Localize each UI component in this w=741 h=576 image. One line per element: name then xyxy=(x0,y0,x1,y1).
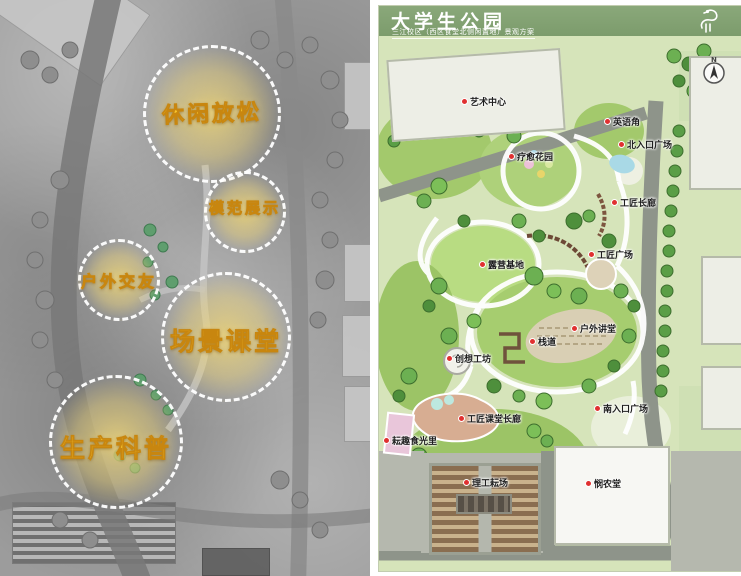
tree-icon xyxy=(166,276,178,288)
tree-icon xyxy=(525,267,543,285)
location-dot-icon xyxy=(588,251,595,258)
location-dot-icon xyxy=(463,479,470,486)
tree-icon xyxy=(673,75,685,87)
tree-icon xyxy=(393,390,405,402)
zone-label: 场景课堂 xyxy=(170,322,282,358)
tree-icon xyxy=(32,212,48,228)
tree-icon xyxy=(277,52,293,68)
tree-icon xyxy=(671,145,683,157)
tree-icon xyxy=(659,305,671,317)
tree-icon xyxy=(665,205,677,217)
tree-icon xyxy=(583,210,595,222)
tree-icon xyxy=(566,213,582,229)
map-label-craftsman-gallery: 工匠长廊 xyxy=(611,196,656,209)
tree-icon xyxy=(82,532,98,548)
zone-label: 户外交友 xyxy=(81,268,157,292)
tree-icon xyxy=(622,329,636,343)
tree-icon xyxy=(292,492,308,508)
tree-icon xyxy=(536,393,552,409)
tree-icon xyxy=(302,37,318,53)
tree-icon xyxy=(62,42,78,58)
tree-icon xyxy=(423,300,435,312)
tree-icon xyxy=(487,379,501,393)
map-label-food-lane: 耘趣食光里 xyxy=(383,434,437,447)
park-design-sheet: 休闲放松 模范展示 户外交友 场景课堂 生产科普 xyxy=(0,0,741,576)
tree-icon xyxy=(602,234,616,248)
campus-building xyxy=(701,366,741,430)
tree-icon xyxy=(667,185,679,197)
tree-icon xyxy=(441,328,457,344)
zone-circle-scene-classroom: 场景课堂 xyxy=(161,272,291,402)
location-dot-icon xyxy=(594,405,601,412)
tree-icon xyxy=(401,368,417,384)
zone-circle-outdoor-social: 户外交友 xyxy=(78,239,160,321)
zone-circle-leisure: 休闲放松 xyxy=(143,45,281,183)
plan-header: 大学生公园 三江校区（西区食堂北侧闲置地）景观方案 xyxy=(379,6,741,36)
tree-icon xyxy=(312,522,328,538)
tree-icon xyxy=(663,225,675,237)
tree-icon xyxy=(47,372,63,388)
tree-icon xyxy=(527,424,541,438)
map-label-north-entrance: 北入口广场 xyxy=(618,138,672,151)
tree-icon xyxy=(36,291,54,309)
map-label-healing-garden: 疗愈花园 xyxy=(508,150,553,163)
tree-icon xyxy=(52,512,68,528)
tree-icon xyxy=(547,284,561,298)
map-label-craftsman-plaza: 工匠广场 xyxy=(588,248,633,261)
tree-icon xyxy=(316,271,334,289)
location-dot-icon xyxy=(458,415,465,422)
location-dot-icon xyxy=(604,118,611,125)
tree-icon xyxy=(27,252,43,268)
tree-icon xyxy=(655,385,667,397)
tree-icon xyxy=(512,214,526,228)
plaza-paving xyxy=(671,451,741,571)
location-dot-icon xyxy=(383,437,390,444)
tree-icon xyxy=(417,194,431,208)
service-road xyxy=(541,451,555,551)
tree-icon xyxy=(663,245,675,257)
farm-plot-dark xyxy=(456,494,512,514)
tree-icon xyxy=(21,51,39,69)
flamingo-icon xyxy=(694,8,728,34)
zone-label: 模范展示 xyxy=(209,197,281,218)
zone-label: 休闲放松 xyxy=(161,94,262,129)
map-label-english-corner: 英语角 xyxy=(604,115,640,128)
tree-icon xyxy=(657,345,669,357)
tree-icon xyxy=(513,390,525,402)
map-label-farming-field: 理工耘场 xyxy=(463,476,508,489)
concept-zoning-plan: 休闲放松 模范展示 户外交友 场景课堂 生产科普 xyxy=(0,0,370,576)
zone-circle-production-science: 生产科普 xyxy=(49,375,183,509)
location-dot-icon xyxy=(461,98,468,105)
tree-icon xyxy=(614,284,628,298)
map-label-classroom-gallery: 工匠课堂长廊 xyxy=(458,412,521,425)
zone-label: 生产科普 xyxy=(60,429,172,465)
tree-icon xyxy=(667,49,681,63)
plaza-paving xyxy=(379,451,424,551)
tree-icon xyxy=(251,31,269,49)
tree-icon xyxy=(582,379,596,393)
campus-building xyxy=(701,256,741,345)
tree-icon xyxy=(628,300,640,312)
location-dot-icon xyxy=(611,199,618,206)
master-plan: 大学生公园 三江校区（西区食堂北侧闲置地）景观方案 N xyxy=(378,5,741,572)
tree-icon xyxy=(661,285,673,297)
tree-icon xyxy=(327,152,343,168)
tree-icon xyxy=(458,215,470,227)
zone-circle-model-display: 模范展示 xyxy=(204,171,286,253)
tree-icon xyxy=(533,230,545,242)
plan-subtitle: 三江校区（西区食堂北侧闲置地）景观方案 xyxy=(392,27,535,39)
location-dot-icon xyxy=(479,261,486,268)
tree-icon xyxy=(659,325,671,337)
location-dot-icon xyxy=(571,325,578,332)
tree-icon xyxy=(312,192,328,208)
map-label-outdoor-lecture: 户外讲堂 xyxy=(571,322,616,335)
tree-icon xyxy=(467,314,481,328)
tree-icon xyxy=(321,71,339,89)
tree-icon xyxy=(669,165,681,177)
map-label-dining-hall: 悯农堂 xyxy=(585,477,621,490)
tree-icon xyxy=(657,365,669,377)
tree-icon xyxy=(158,242,168,252)
tree-icon xyxy=(431,278,447,294)
map-label-boardwalk: 栈道 xyxy=(529,335,556,348)
tree-icon xyxy=(271,471,289,489)
tree-icon xyxy=(673,125,685,137)
map-label-art-center: 艺术中心 xyxy=(461,95,506,108)
map-label-south-entrance: 南入口广场 xyxy=(594,402,648,415)
tree-icon xyxy=(541,435,553,447)
tree-icon xyxy=(32,332,48,348)
tree-icon xyxy=(310,312,326,328)
tree-icon xyxy=(144,224,156,236)
tree-icon xyxy=(332,112,348,128)
tree-icon xyxy=(661,265,673,277)
map-label-camping-base: 露营基地 xyxy=(479,258,524,271)
tree-icon xyxy=(42,67,58,83)
location-dot-icon xyxy=(618,141,625,148)
location-dot-icon xyxy=(529,338,536,345)
tree-icon xyxy=(608,360,620,372)
tree-icon xyxy=(51,171,69,189)
tree-icon xyxy=(322,232,338,248)
location-dot-icon xyxy=(508,153,515,160)
tree-icon xyxy=(431,178,447,194)
map-label-creative-workshop: 创想工坊 xyxy=(446,352,491,365)
north-compass-icon: N xyxy=(701,54,727,86)
location-dot-icon xyxy=(446,355,453,362)
dining-hall-building xyxy=(554,446,670,545)
tree-icon xyxy=(571,288,587,304)
location-dot-icon xyxy=(585,480,592,487)
